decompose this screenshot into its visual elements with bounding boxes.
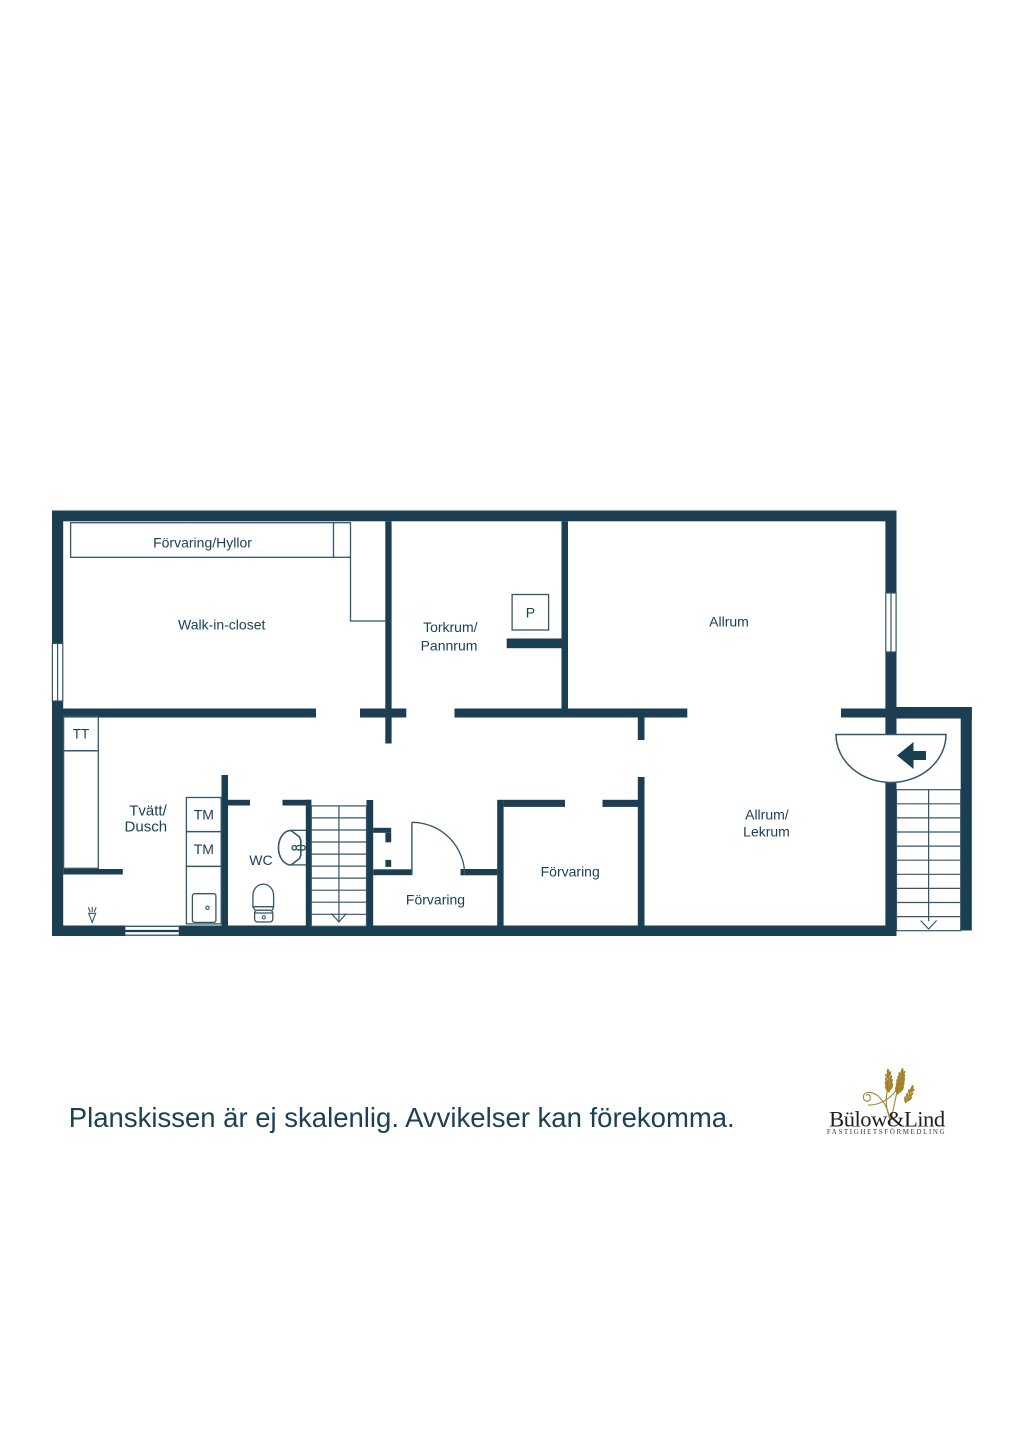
svg-text:Allrum: Allrum [709,614,749,630]
svg-text:Planskissen är ej skalenlig. A: Planskissen är ej skalenlig. Avvikelser … [69,1102,735,1133]
svg-text:Allrum/: Allrum/ [745,807,789,823]
svg-text:Lekrum: Lekrum [743,824,790,840]
svg-text:Förvaring/Hyllor: Förvaring/Hyllor [153,535,252,551]
svg-text:TM: TM [194,841,214,857]
svg-text:Förvaring: Förvaring [541,863,600,879]
svg-text:Walk-in-closet: Walk-in-closet [178,617,265,633]
svg-text:TM: TM [194,806,214,822]
svg-text:WC: WC [249,852,272,868]
svg-text:FASTIGHETSFÖRMEDLING: FASTIGHETSFÖRMEDLING [827,1128,946,1136]
svg-text:Dusch: Dusch [125,819,168,836]
svg-text:TT: TT [73,726,90,741]
svg-text:Tvätt/: Tvätt/ [129,803,167,820]
svg-text:Förvaring: Förvaring [406,892,465,908]
svg-text:Torkrum/: Torkrum/ [423,619,478,635]
svg-text:Pannrum: Pannrum [421,637,478,653]
svg-text:P: P [526,605,535,621]
